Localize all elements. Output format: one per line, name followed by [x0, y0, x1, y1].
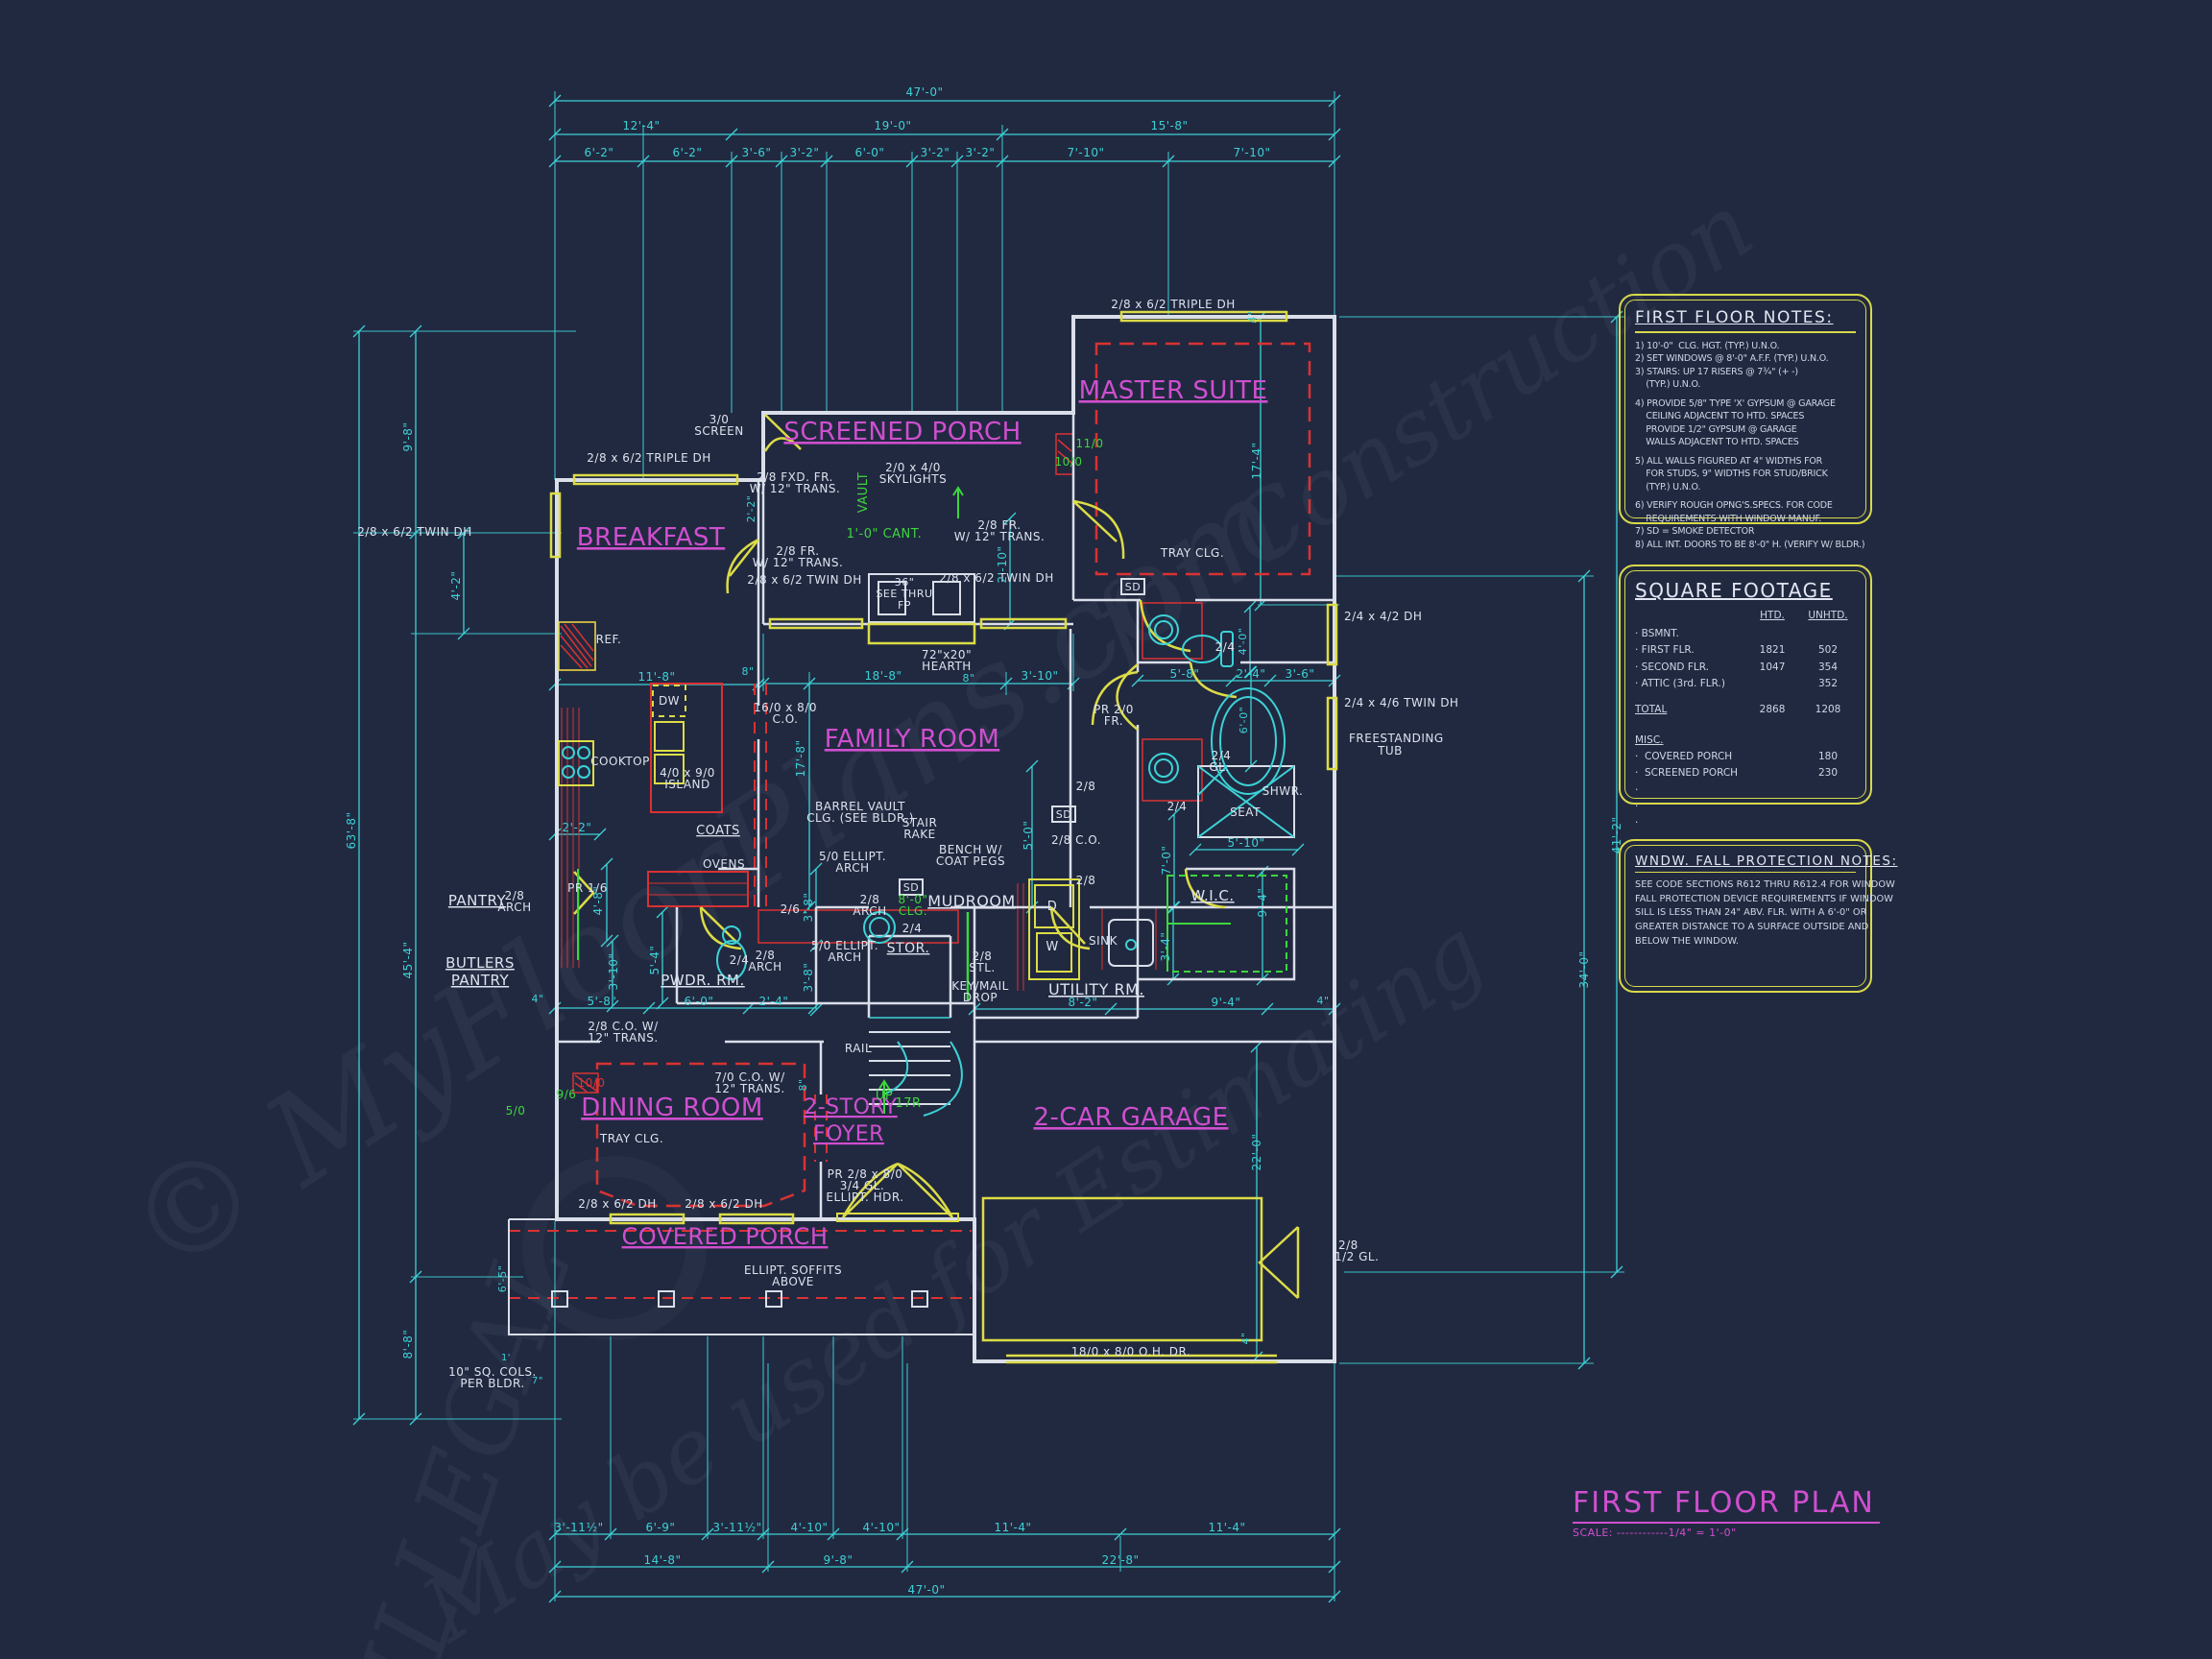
note-line: 6) VERIFY ROUGH OPNG'S.SPECS. FOR CODE	[1635, 499, 1856, 512]
plan-label: 5'-10"	[1227, 836, 1264, 850]
plan-svg: © MyFloorPlans.comMay be used for Estima…	[0, 0, 2212, 1659]
plan-label: RAKE	[903, 828, 936, 841]
room-label-screened-porch: SCREENED PORCH	[783, 418, 1021, 446]
plan-label: FR.	[1104, 714, 1123, 728]
plan-label: 5'-4"	[648, 946, 661, 975]
watermark-layer: © MyFloorPlans.comMay be used for Estima…	[103, 174, 1771, 1659]
plan-label: 7'-10"	[1067, 146, 1104, 159]
room-label-breakfast: BREAKFAST	[577, 523, 725, 552]
plan-label: 2/6	[781, 902, 801, 916]
plan-label: 9'-4"	[1212, 996, 1241, 1009]
plan-label: 6'-2"	[673, 146, 703, 159]
note-line: FOR STUDS, 9" WIDTHS FOR STUD/BRICK	[1635, 468, 1856, 480]
note-line: 2) SET WINDOWS @ 8'-0" A.F.F. (TYP.) U.N…	[1635, 352, 1856, 365]
plan-label: ARCH	[853, 904, 886, 918]
room-label-master-suite: MASTER SUITE	[1079, 376, 1268, 405]
plan-label: 2/4 x 4/6 TWIN DH	[1344, 696, 1458, 709]
plan-label: 9'-4"	[1256, 888, 1269, 918]
plan-label: SINK	[1089, 934, 1118, 948]
room-label-covered-porch: COVERED PORCH	[622, 1223, 829, 1250]
plan-label: 17R	[895, 1096, 921, 1111]
plan-label: 1'-0" CANT.	[847, 527, 923, 541]
plan-label: COOKTOP	[590, 755, 650, 768]
plan-label: GL.	[1209, 760, 1229, 774]
plan-label: SD	[1056, 808, 1071, 821]
table-total-row: TOTAL 2868 1208	[1635, 702, 1856, 718]
plan-label: 7'-0"	[1160, 846, 1173, 876]
plan-label: DW	[659, 694, 680, 708]
plan-label: COAT PEGS	[936, 854, 1005, 868]
plan-label: COATS	[696, 824, 740, 838]
fall-protection-panel: WNDW. FALL PROTECTION NOTES: SEE CODE SE…	[1619, 839, 1872, 993]
plan-label: 9/6	[557, 1088, 577, 1101]
fall-protection-line: SEE CODE SECTIONS R612 THRU R612.4 FOR W…	[1635, 878, 1856, 893]
plan-label: 3'-6"	[1286, 667, 1315, 681]
notes-title: FIRST FLOOR NOTES:	[1635, 308, 1856, 333]
vault-arrow	[953, 488, 963, 518]
plan-label: 2/8 x 6/2 DH	[578, 1197, 656, 1211]
plan-label: 4'-10"	[790, 1521, 828, 1534]
square-footage-panel: SQUARE FOOTAGE HTD. UNHTD. · BSMNT. · FI…	[1619, 565, 1872, 805]
plan-label: 4"	[1316, 995, 1329, 1007]
note-line: PROVIDE 1/2" GYPSUM @ GARAGE	[1635, 423, 1856, 436]
plan-label: 10/0	[578, 1076, 606, 1090]
plan-label: 8"	[962, 672, 974, 685]
room-label-garage: 2-CAR GARAGE	[1033, 1103, 1228, 1132]
plan-label: 63'-8"	[345, 811, 358, 849]
plan-label: 2/8	[1076, 780, 1096, 793]
note-line: (TYP.) U.N.O.	[1635, 378, 1856, 391]
plan-label: TUB	[1377, 744, 1403, 757]
plan-label: 5'-8"	[588, 995, 617, 1008]
room-label-wic: W.I.C.	[1190, 887, 1234, 904]
plan-label: 10/0	[1055, 455, 1083, 469]
plan-label: 7'-10"	[1233, 146, 1270, 159]
fall-protection-line: FALL PROTECTION DEVICE REQUIREMENTS IF W…	[1635, 893, 1856, 907]
plan-label: 2'-10"	[996, 545, 1009, 583]
plan-label: TRAY CLG.	[599, 1132, 663, 1145]
plan-label: 3'-2"	[790, 146, 820, 159]
plan-label: 2/4 x 4/2 DH	[1344, 610, 1422, 623]
title-block: FIRST FLOOR PLAN SCALE: ------------1/4"…	[1573, 1486, 1880, 1539]
plan-label: PANTRY	[451, 972, 510, 989]
fall-protection-line: BELOW THE WINDOW.	[1635, 935, 1856, 950]
room-label-powder-room: PWDR. RM.	[661, 972, 744, 989]
plan-label: ARCH	[497, 901, 531, 914]
room-label-storage: STOR.	[887, 941, 930, 956]
plan-label: DROP	[963, 991, 998, 1004]
plan-label: SEAT	[1230, 805, 1261, 819]
plan-label: FOYER	[813, 1122, 884, 1146]
note-line: CEILING ADJACENT TO HTD. SPACES	[1635, 410, 1856, 422]
table-row: ·	[1635, 782, 1856, 799]
plan-label: 8'-8"	[401, 1330, 415, 1359]
plan-label: 2'-2"	[563, 821, 592, 834]
plan-label: VAULT	[856, 472, 871, 513]
fall-protection-line: SILL IS LESS THAN 24" ABV. FLR. WITH A 6…	[1635, 906, 1856, 921]
plan-label: 3'-4"	[1159, 932, 1172, 962]
plan-label: 6'-0"	[855, 146, 885, 159]
plan-label: 11/0	[1076, 437, 1104, 450]
plan-label: 3'-8"	[802, 963, 815, 993]
table-row: ·	[1635, 815, 1856, 831]
plan-label: 6'-0"	[685, 995, 714, 1008]
plan-label: 34'-0"	[1577, 950, 1591, 988]
plan-label: 22'-0"	[1250, 1133, 1263, 1170]
plan-label: 6'-0"	[1238, 707, 1250, 734]
plan-label: 8"	[741, 665, 754, 678]
plan-label: 2/4	[902, 922, 923, 935]
plan-label: 7"	[532, 1376, 543, 1386]
plan-label: 6'-5"	[496, 1265, 509, 1293]
note-line: 1) 10'-0" CLG. HGT. (TYP.) U.N.O.	[1635, 340, 1856, 352]
plan-label: 14'-8"	[643, 1553, 681, 1567]
plan-label: 47'-0"	[905, 85, 943, 99]
garage-man-door	[1260, 1227, 1298, 1298]
plan-label: 2/4	[1215, 640, 1236, 654]
plan-label: 8"	[797, 1078, 809, 1091]
plan-label: 47'-0"	[907, 1583, 945, 1597]
plan-label: 17'-8"	[794, 739, 807, 777]
note-line: 5) ALL WALLS FIGURED AT 4" WIDTHS FOR	[1635, 455, 1856, 468]
plan-label: 4"	[1246, 310, 1259, 323]
plan-label: 3'-6"	[742, 146, 772, 159]
col-header-htd: HTD.	[1744, 610, 1800, 621]
plan-label: 15'-8"	[1150, 119, 1188, 132]
plan-label: 12'-4"	[622, 119, 660, 132]
plan-label: 18/0 x 8/0 O.H. DR.	[1071, 1345, 1190, 1358]
plan-label: 12" TRANS.	[588, 1031, 658, 1045]
room-label-mudroom: MUDROOM	[927, 892, 1015, 910]
plan-label: 2/8 C.O.	[1051, 833, 1101, 847]
plan-label: SD	[1125, 581, 1141, 593]
plan-label: 12" TRANS.	[714, 1082, 784, 1095]
plan-label: ARCH	[828, 950, 861, 964]
plan-label: 2/8 x 6/2 TWIN DH	[747, 573, 861, 587]
plan-label: 11'-8"	[637, 670, 675, 684]
plan-label: 2/4	[730, 953, 750, 967]
note-line: (TYP.) U.N.O.	[1635, 481, 1856, 493]
plan-label: 3'-8"	[802, 893, 815, 923]
misc-header: MISC.	[1635, 733, 1748, 749]
first-floor-notes-panel: FIRST FLOOR NOTES: 1) 10'-0" CLG. HGT. (…	[1619, 294, 1872, 524]
plan-label: HEARTH	[922, 660, 972, 673]
fall-protection-line: GREATER DISTANCE TO A SURFACE OUTSIDE AN…	[1635, 921, 1856, 935]
plan-label: UP	[876, 1089, 893, 1103]
note-line: 7) SD = SMOKE DETECTOR	[1635, 525, 1856, 538]
plan-label: 6'-2"	[585, 146, 614, 159]
plan-label: REF.	[596, 633, 622, 646]
plan-label: 4'-10"	[862, 1521, 900, 1534]
plan-label: C.O.	[773, 712, 799, 726]
plan-label: 2/8 x 6/2 TRIPLE DH	[587, 451, 710, 465]
plan-label: D	[1047, 900, 1058, 914]
plan-label: RAIL	[845, 1042, 872, 1055]
table-row: · COVERED PORCH 180	[1635, 749, 1856, 765]
table-row: · FIRST FLR. 1821 502	[1635, 642, 1856, 659]
room-label-butlers-pantry: BUTLERS	[445, 954, 515, 972]
plan-label: W	[1046, 940, 1058, 954]
drawing-title: FIRST FLOOR PLAN	[1573, 1486, 1880, 1524]
plan-label: FP	[898, 599, 911, 612]
plan-label: 1/2 GL.	[1334, 1250, 1379, 1263]
lav-sink	[1149, 754, 1178, 782]
fall-protection-title: WNDW. FALL PROTECTION NOTES:	[1635, 854, 1856, 873]
plan-label: W/ 12" TRANS.	[954, 530, 1046, 543]
plan-label: 11'-4"	[1208, 1521, 1245, 1534]
table-row: · SCREENED PORCH 230	[1635, 765, 1856, 781]
plan-labels: MASTER SUITESCREENED PORCHBREAKFASTFAMIL…	[345, 85, 1623, 1597]
note-line: 8) ALL INT. DOORS TO BE 8'-0" H. (VERIFY…	[1635, 539, 1856, 551]
plan-label: 2/8	[1076, 874, 1096, 887]
plan-label: 3'-11½"	[554, 1521, 603, 1534]
plan-label: 3'-11½"	[712, 1521, 761, 1534]
plan-label: 4'-0"	[1237, 628, 1249, 656]
plan-label: W/ 12" TRANS.	[750, 482, 841, 495]
plan-label: 2'-2"	[745, 495, 757, 523]
table-row: ·	[1635, 799, 1856, 815]
plan-label: SHWR.	[1262, 784, 1304, 798]
plan-label: 2/8 x 6/2 TWIN DH	[357, 525, 471, 539]
plan-label: 2/8 x 6/2 TRIPLE DH	[1111, 298, 1235, 311]
plan-label: 4'-8"	[591, 886, 605, 916]
plan-label: 11'-4"	[994, 1521, 1031, 1534]
plan-label: 3'-2"	[921, 146, 950, 159]
plan-label: STL.	[969, 961, 995, 974]
plan-label: 8'-2"	[1069, 996, 1098, 1009]
plan-label: 4"	[1239, 1332, 1252, 1344]
plan-label: 22'-8"	[1101, 1553, 1139, 1567]
plan-label: 2/4	[1167, 800, 1188, 813]
note-line: WALLS ADJACENT TO HTD. SPACES	[1635, 436, 1856, 448]
plan-label: CLG. (SEE BLDR.)	[806, 811, 914, 825]
room-label-dining-room: DINING ROOM	[581, 1094, 763, 1122]
freestanding-tub	[1212, 688, 1285, 794]
plan-label: 5'-0"	[1022, 821, 1035, 851]
shower-glass	[1198, 766, 1294, 837]
plan-label: SCREEN	[694, 424, 743, 438]
plan-label: 45'-4"	[401, 941, 415, 978]
plan-label: 2/8 x 6/2 DH	[685, 1197, 762, 1211]
table-row: · SECOND FLR. 1047 354	[1635, 660, 1856, 676]
table-row: · ATTIC (3rd. FLR.) 352	[1635, 676, 1856, 692]
plan-label: ISLAND	[664, 778, 710, 791]
room-label-family-room: FAMILY ROOM	[825, 725, 1000, 754]
drawing-scale: SCALE: ------------1/4" = 1'-0"	[1573, 1527, 1880, 1539]
plan-label: SKYLIGHTS	[879, 472, 947, 486]
plan-label: 6'-9"	[646, 1521, 676, 1534]
square-footage-title: SQUARE FOOTAGE	[1635, 579, 1833, 602]
note-line: 3) STAIRS: UP 17 RISERS @ 7¾" (+ -)	[1635, 366, 1856, 378]
plan-label: ELLIPT. HDR.	[826, 1190, 903, 1204]
plan-label: TRAY CLG.	[1160, 546, 1224, 560]
col-header-unhtd: UNHTD.	[1800, 610, 1856, 621]
plan-label: 9'-8"	[824, 1553, 854, 1567]
plan-label: 1'	[501, 1353, 511, 1363]
plan-label: 17'-4"	[1250, 442, 1263, 479]
plan-label: ABOVE	[772, 1275, 814, 1288]
plan-label: 4"	[531, 993, 543, 1005]
plan-label: 5/0	[506, 1104, 526, 1118]
plan-label: 4'-2"	[449, 571, 463, 601]
plan-label: ARCH	[835, 861, 869, 875]
plan-label: 2'-4"	[759, 995, 789, 1008]
table-row: · BSMNT.	[1635, 626, 1856, 642]
plan-label: 9'-8"	[401, 422, 415, 452]
note-line: 4) PROVIDE 5/8" TYPE 'X' GYPSUM @ GARAGE	[1635, 397, 1856, 410]
floor-plan-canvas: © MyFloorPlans.comMay be used for Estima…	[0, 0, 2212, 1659]
plan-label: OVENS	[703, 857, 745, 871]
plan-label: ARCH	[748, 960, 781, 974]
plan-label: CLG.	[899, 904, 927, 918]
plan-label: 3'-10"	[1021, 669, 1058, 683]
note-line: REQUIREMENTS WITH WINDOW MANUF.	[1635, 513, 1856, 525]
plan-label: 5'-8"	[1170, 667, 1200, 681]
plan-label: W/ 12" TRANS.	[753, 556, 844, 569]
plan-label: 2'-4"	[1237, 667, 1266, 681]
plan-label: 18'-8"	[864, 669, 902, 683]
plan-label: FREESTANDING	[1349, 732, 1444, 745]
plan-label: PER BLDR.	[460, 1377, 524, 1390]
plan-label: 3'-2"	[966, 146, 996, 159]
plan-label: 19'-0"	[874, 119, 911, 132]
plan-label: 3'-10"	[607, 952, 620, 990]
